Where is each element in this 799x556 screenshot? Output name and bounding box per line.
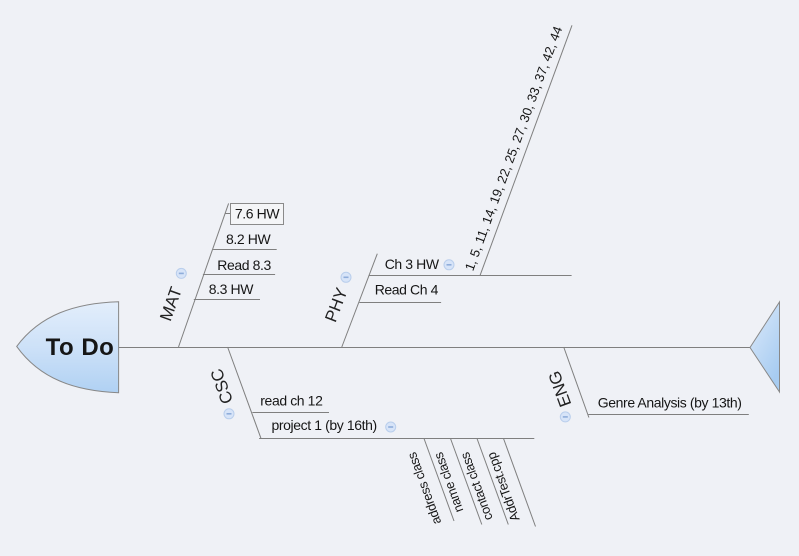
svg-text:8.2 HW: 8.2 HW	[226, 231, 271, 247]
svg-text:Genre Analysis (by 13th): Genre Analysis (by 13th)	[598, 395, 742, 411]
svg-text:Ch 3 HW: Ch 3 HW	[385, 256, 440, 272]
svg-text:7.6 HW: 7.6 HW	[235, 206, 280, 222]
svg-text:To Do: To Do	[46, 334, 115, 361]
svg-text:read ch 12: read ch 12	[260, 393, 323, 409]
svg-text:project 1 (by 16th): project 1 (by 16th)	[272, 417, 377, 433]
svg-text:Read 8.3: Read 8.3	[217, 257, 271, 273]
svg-text:8.3 HW: 8.3 HW	[209, 281, 254, 297]
svg-text:Read Ch 4: Read Ch 4	[375, 281, 439, 297]
